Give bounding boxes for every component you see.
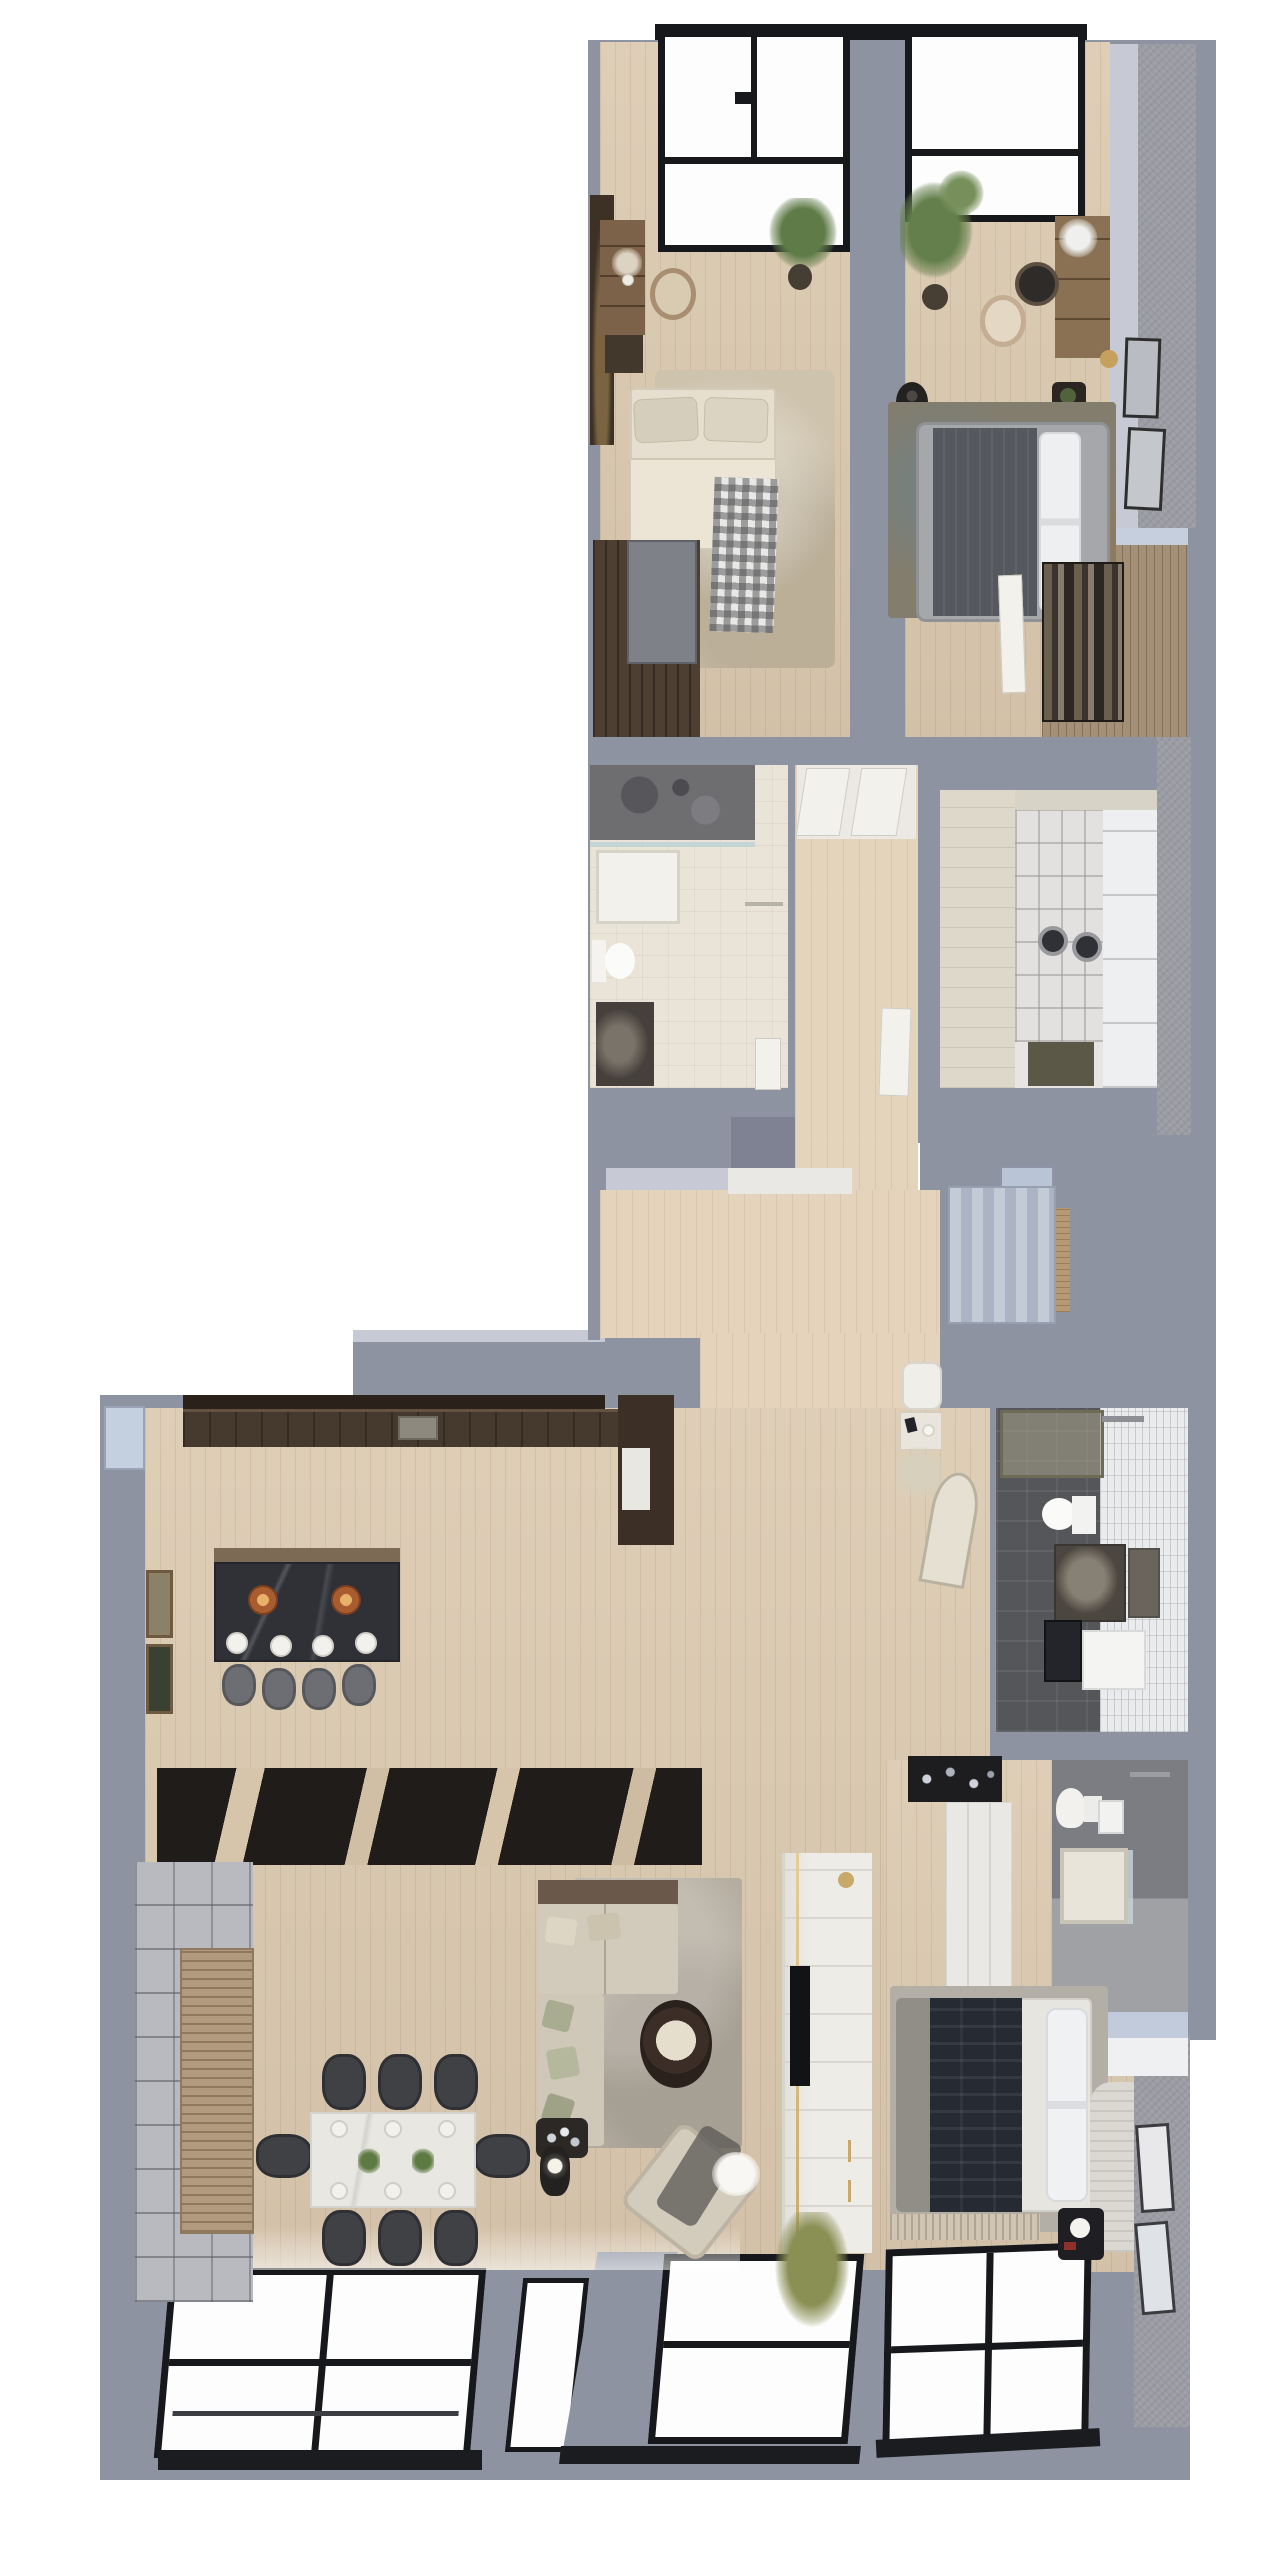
dining-chair <box>434 2210 478 2266</box>
glass-shower <box>1000 1410 1104 1478</box>
window-mullion <box>169 2359 472 2366</box>
coffee-table <box>640 2000 712 2088</box>
bar-stool <box>342 1664 376 1706</box>
shower-bar <box>1102 1416 1144 1422</box>
side-table <box>605 335 643 373</box>
sheepskin <box>712 2152 760 2196</box>
open-wardrobe-clothes <box>1042 562 1124 722</box>
storage-cabinet <box>1082 1630 1146 1690</box>
towel-bar <box>1130 1772 1170 1777</box>
accent-chair <box>980 295 1026 347</box>
kitchen-sink <box>398 1416 438 1440</box>
television <box>790 1966 810 2086</box>
hall-left-wall-lower <box>588 1190 600 1340</box>
sofa-back-rail <box>538 1880 678 1904</box>
sphere-lamp <box>1070 2218 1090 2238</box>
cushion <box>587 1912 622 1941</box>
accent-chair <box>650 268 696 320</box>
glass-screen <box>1128 1850 1133 1924</box>
wall-frame <box>1124 427 1166 511</box>
window-base-trim <box>158 2450 482 2470</box>
door <box>998 575 1026 694</box>
stone-vanity <box>596 1002 654 1086</box>
towel-rail <box>745 902 783 906</box>
island-wood-shelf <box>214 1548 400 1562</box>
red-book <box>1064 2242 1076 2250</box>
pillow <box>633 396 699 443</box>
dining-chair <box>378 2210 422 2266</box>
right-outer-wall <box>1188 1408 1216 2040</box>
dining-chair <box>322 2054 366 2110</box>
ceiling-panel <box>728 1168 852 1194</box>
olive-plant <box>772 2212 852 2332</box>
bar-stool <box>302 1668 336 1710</box>
window-mullion <box>665 157 843 164</box>
cabinet-handle <box>848 2140 851 2162</box>
wall-art <box>146 1570 173 1638</box>
place-setting <box>270 1635 292 1657</box>
knit-runner <box>890 2214 1040 2240</box>
kitchen-corner-window <box>104 1406 145 1470</box>
built-in-appliance <box>622 1448 650 1510</box>
laundry-basket <box>1028 1042 1094 1086</box>
bench-pouf <box>902 1362 942 1410</box>
plaid-throw <box>709 477 778 633</box>
window-base-trim <box>559 2446 861 2464</box>
shower-tray <box>596 850 680 924</box>
window-handle <box>735 92 755 104</box>
bed-edge-band <box>896 1998 930 2212</box>
built-in-wardrobe <box>946 1802 1012 1988</box>
place-setting <box>312 1635 334 1657</box>
stone-vanity <box>1054 1544 1126 1622</box>
window-mullion <box>663 2341 850 2348</box>
copper-bowl <box>248 1585 278 1615</box>
copper-bowl <box>331 1585 361 1615</box>
gold-sconce <box>1100 350 1118 368</box>
cushion <box>544 1916 577 1946</box>
cushion <box>546 2046 581 2081</box>
plant-pot <box>788 264 812 290</box>
bar-stool <box>222 1664 256 1706</box>
table-lamp <box>922 1424 935 1437</box>
pillows <box>1046 2008 1088 2202</box>
entry-console <box>900 1412 942 1450</box>
shower-glass-screen <box>590 842 755 847</box>
marble-wall-band <box>940 790 1015 1088</box>
flower-bouquet <box>1058 218 1098 258</box>
place-setting <box>384 2182 402 2200</box>
black-appliance <box>1044 1620 1082 1682</box>
open-door <box>878 1008 911 1097</box>
wall-frame <box>1135 2123 1175 2213</box>
round-mirror <box>1015 262 1059 306</box>
dryer <box>1072 932 1102 962</box>
gold-decor <box>838 1872 854 1888</box>
laundry-outer-wall-textured <box>1157 737 1191 1135</box>
toilet <box>1042 1498 1076 1530</box>
place-setting <box>330 2182 348 2200</box>
plant-pot <box>922 284 948 310</box>
toilet <box>1056 1788 1086 1828</box>
wall-art <box>146 1644 173 1714</box>
place-setting <box>330 2120 348 2138</box>
dining-chair <box>474 2134 530 2178</box>
dining-chair <box>256 2134 312 2178</box>
dining-chair <box>434 2054 478 2110</box>
potted-plant <box>938 168 984 218</box>
washing-machine <box>1038 926 1068 956</box>
vase <box>622 274 634 286</box>
upper-cabinet-row <box>183 1395 605 1409</box>
white-tile-wall <box>1103 810 1157 1088</box>
greenery-centerpiece <box>412 2148 434 2174</box>
potted-plant <box>765 198 841 274</box>
marble-shower-tray <box>1060 1848 1128 1924</box>
laundry-top-shelf <box>1015 790 1157 810</box>
slatted-sideboard <box>180 1948 254 2234</box>
place-setting <box>384 2120 402 2138</box>
striped-doormat <box>948 1186 1056 1324</box>
navy-quilt <box>930 1998 1022 2212</box>
dark-floor-inlay <box>157 1768 702 1865</box>
bedroom3-corner-window <box>882 2242 1091 2449</box>
bar-stool <box>262 1668 296 1710</box>
dining-chair <box>322 2210 366 2266</box>
toilet-tank <box>1072 1496 1096 1534</box>
hall-floor-upper <box>600 1190 940 1338</box>
place-setting <box>438 2182 456 2200</box>
window-vent-line <box>172 2411 458 2416</box>
toilet-tank <box>592 940 606 982</box>
black-dresser-decor <box>908 1756 1002 1802</box>
door <box>755 1038 781 1090</box>
walk-in-shower <box>590 765 755 840</box>
place-setting <box>226 1632 248 1654</box>
mirror <box>1128 1548 1160 1618</box>
linen-shelving <box>1015 810 1103 1042</box>
wood-threshold <box>1056 1208 1070 1312</box>
place-setting <box>355 1632 377 1654</box>
window-mullion <box>912 149 1078 156</box>
kitchen-top-wall-cap <box>353 1330 605 1342</box>
place-setting <box>438 2120 456 2138</box>
wall-hung-basin <box>1098 1800 1124 1834</box>
toilet <box>605 943 635 979</box>
dining-chair <box>378 2054 422 2110</box>
wall-frame <box>1123 337 1162 418</box>
floor-plan-scene <box>0 0 1280 2560</box>
pillow <box>703 397 768 443</box>
cabinet-handle <box>848 2180 851 2202</box>
floor-lamp <box>540 2146 570 2196</box>
greenery-centerpiece <box>358 2148 380 2174</box>
wardrobe-door-panel <box>627 540 697 664</box>
